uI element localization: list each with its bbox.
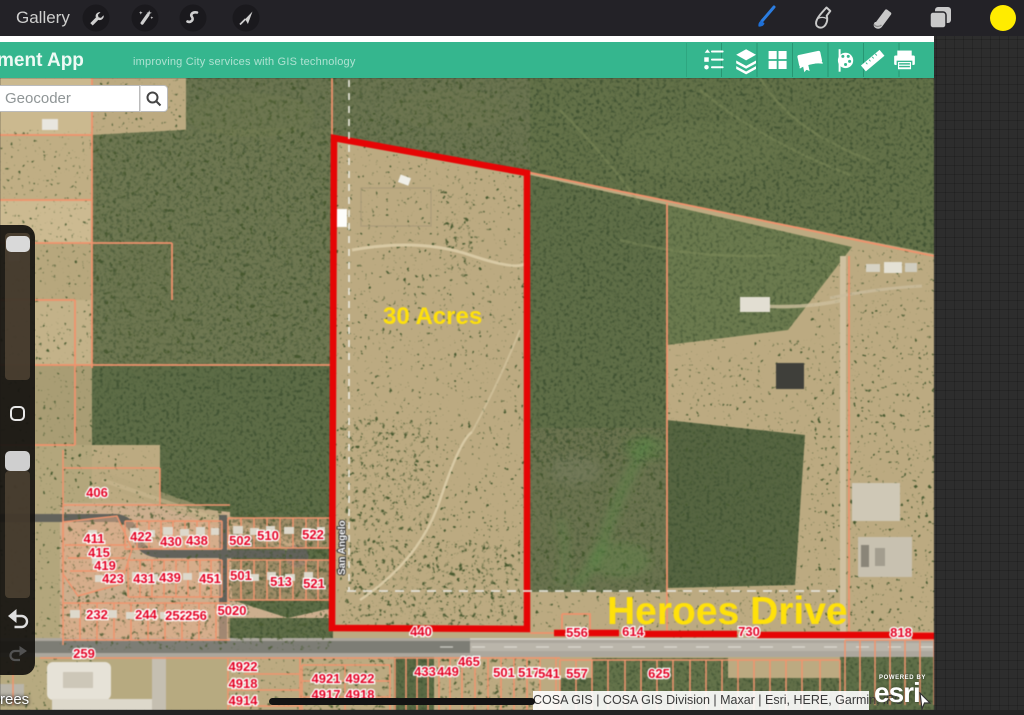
svg-text:438: 438 <box>186 533 208 548</box>
svg-text:430: 430 <box>160 534 182 549</box>
svg-text:5020: 5020 <box>218 603 247 618</box>
svg-text:501: 501 <box>230 568 252 583</box>
svg-text:30 Acres: 30 Acres <box>383 303 482 330</box>
svg-text:259: 259 <box>73 646 95 661</box>
svg-text:522: 522 <box>302 527 324 542</box>
svg-text:256: 256 <box>185 608 207 623</box>
svg-text:730: 730 <box>738 624 760 639</box>
svg-text:502: 502 <box>229 533 251 548</box>
svg-text:4918: 4918 <box>229 676 258 691</box>
svg-text:556: 556 <box>566 625 588 640</box>
svg-text:513: 513 <box>270 574 292 589</box>
svg-text:232: 232 <box>86 607 108 622</box>
svg-text:614: 614 <box>622 624 644 639</box>
svg-text:4921: 4921 <box>312 671 341 686</box>
svg-text:818: 818 <box>890 625 912 640</box>
svg-text:521: 521 <box>303 576 325 591</box>
svg-text:431: 431 <box>133 571 155 586</box>
svg-text:422: 422 <box>130 529 152 544</box>
svg-text:4922: 4922 <box>229 659 258 674</box>
svg-text:625: 625 <box>648 666 670 681</box>
svg-text:440: 440 <box>410 624 432 639</box>
svg-text:411: 411 <box>84 531 105 546</box>
svg-text:501: 501 <box>493 665 515 680</box>
svg-text:423: 423 <box>102 571 124 586</box>
svg-text:4922: 4922 <box>346 671 375 686</box>
svg-text:439: 439 <box>159 570 181 585</box>
svg-text:433: 433 <box>414 664 436 679</box>
svg-text:San Angelo: San Angelo <box>337 520 348 575</box>
svg-text:451: 451 <box>199 571 221 586</box>
svg-text:510: 510 <box>257 528 279 543</box>
svg-text:252: 252 <box>165 608 187 623</box>
svg-text:557: 557 <box>566 666 588 681</box>
svg-text:517: 517 <box>518 665 540 680</box>
svg-text:541: 541 <box>538 666 560 681</box>
svg-text:406: 406 <box>86 485 108 500</box>
svg-text:4914: 4914 <box>229 693 259 708</box>
svg-text:465: 465 <box>458 654 480 669</box>
svg-text:449: 449 <box>437 664 459 679</box>
svg-text:244: 244 <box>135 607 157 622</box>
